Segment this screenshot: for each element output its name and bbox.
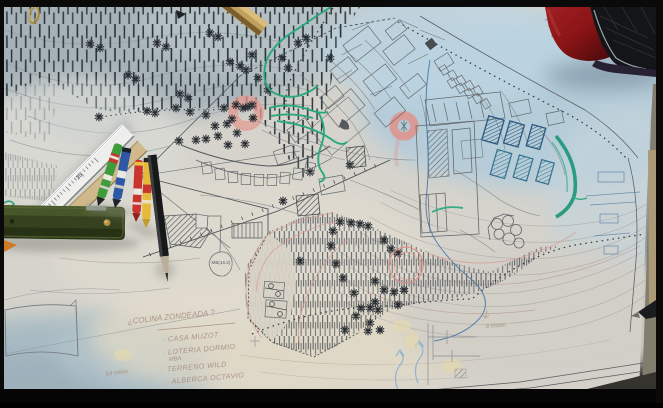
svg-text:MBA: MBA [169,356,182,363]
svg-text:MB(16.3): MB(16.3) [212,260,231,265]
